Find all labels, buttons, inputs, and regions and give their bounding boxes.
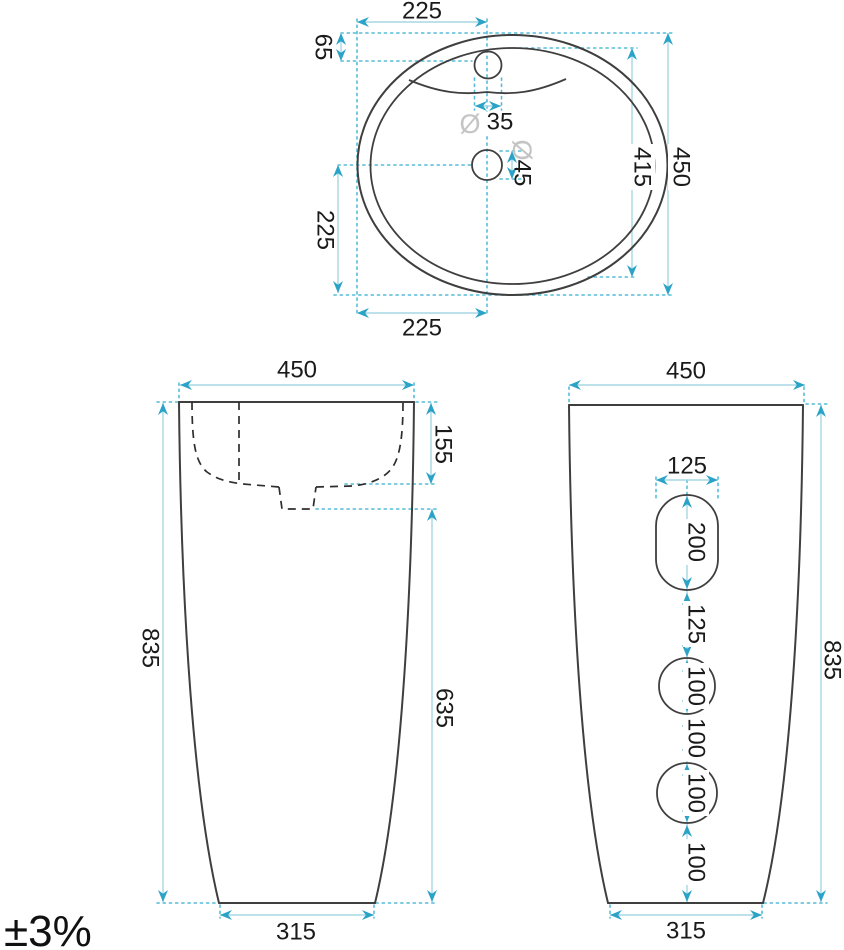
dim-label-450-diameter: 450 — [668, 147, 695, 187]
pedestal-front-view: 450 155 835 635 315 — [137, 357, 458, 946]
top-view-arrows — [333, 17, 673, 318]
diameter-symbol: Ø — [507, 139, 537, 160]
dim-label-slot-125: 125 — [667, 453, 707, 480]
top-view-labels: 225 65 Ø 35 Ø 45 225 225 415 — [310, 0, 695, 342]
dim-label-gap-125: 125 — [683, 604, 710, 644]
svg-text:45: 45 — [509, 160, 536, 187]
back-left-side — [569, 405, 608, 903]
technical-drawing-page: 225 65 Ø 35 Ø 45 225 225 415 — [0, 0, 844, 950]
dim-label-holegap-100: 100 — [683, 718, 710, 758]
dim-label-635: 635 — [431, 688, 458, 728]
back-right-side — [763, 405, 803, 903]
dim-label-top-225: 225 — [402, 0, 442, 25]
back-view-labels: 450 125 200 125 100 100 100 — [666, 358, 844, 945]
faucet-hole — [475, 52, 502, 79]
dim-label-back-835: 835 — [819, 640, 844, 680]
dim-label-front-835: 835 — [137, 628, 164, 668]
dim-label-bottomgap-100: 100 — [683, 842, 710, 882]
dim-label-back-450: 450 — [666, 358, 706, 385]
dim-label-front-450: 450 — [277, 357, 317, 384]
tolerance-note: ±3% — [4, 907, 92, 950]
front-view-labels: 450 155 835 635 315 — [137, 357, 458, 946]
front-view-dimension-lines — [163, 385, 432, 915]
dim-label-hole1-100: 100 — [683, 666, 710, 706]
pedestal-back-view: 450 125 200 125 100 100 100 — [569, 358, 844, 945]
dim-label-155: 155 — [430, 424, 457, 464]
diameter-symbol: Ø — [459, 109, 480, 139]
basin-hidden-right — [316, 402, 403, 487]
front-right-side — [375, 402, 414, 903]
dim-label-415: 415 — [629, 147, 656, 187]
front-left-side — [179, 402, 219, 903]
dim-label-left-225: 225 — [312, 210, 339, 250]
dim-label-200: 200 — [683, 522, 710, 562]
dim-label-drain-diameter: Ø 45 — [507, 139, 537, 186]
sink-top-view: 225 65 Ø 35 Ø 45 225 225 415 — [310, 0, 695, 342]
top-view-extension-lines — [334, 19, 672, 313]
pedestal-front-outline — [179, 402, 414, 903]
dim-label-faucet-diameter: Ø 35 — [458, 109, 516, 140]
basin-hidden-left — [192, 402, 279, 487]
dim-label-back-315: 315 — [666, 918, 706, 945]
top-view-dimension-lines — [338, 22, 668, 313]
dim-label-65: 65 — [310, 34, 337, 61]
drain-trap-hidden — [279, 487, 316, 509]
dim-label-bottom-225: 225 — [402, 315, 442, 342]
washbasin-dimension-drawing: 225 65 Ø 35 Ø 45 225 225 415 — [0, 0, 844, 950]
dim-label-hole2-100: 100 — [683, 773, 710, 813]
svg-text:35: 35 — [487, 109, 514, 136]
dim-label-front-315: 315 — [276, 919, 316, 946]
